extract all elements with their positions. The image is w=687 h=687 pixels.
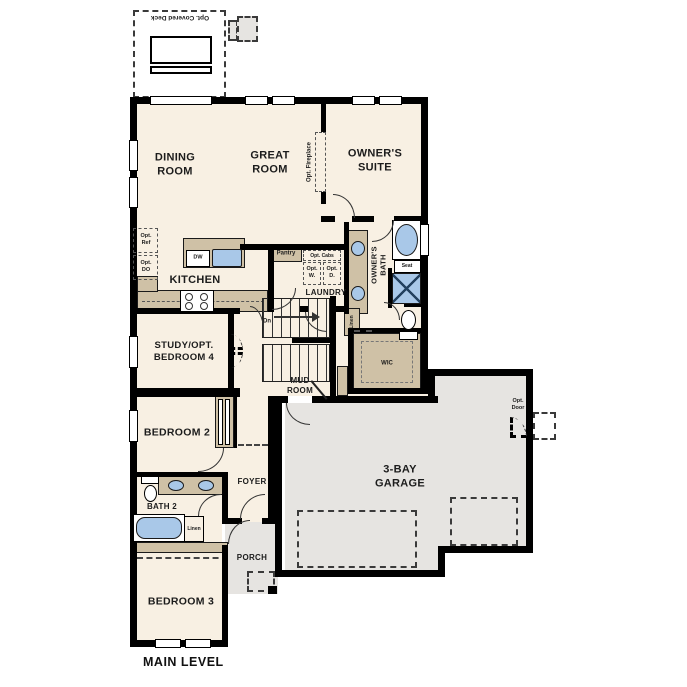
wall bbox=[222, 545, 228, 647]
closet-slider bbox=[225, 399, 230, 445]
opt-cabs-label: Opt. Cabs bbox=[310, 253, 334, 259]
wall bbox=[428, 369, 435, 403]
wall bbox=[421, 352, 428, 394]
stairs-dn-label: Dn bbox=[263, 318, 271, 326]
burner-icon bbox=[200, 293, 208, 301]
wall bbox=[275, 570, 445, 577]
window bbox=[129, 140, 138, 171]
opt-fireplace-box bbox=[315, 132, 326, 192]
bath2-sink bbox=[168, 480, 184, 491]
deck-stair-landing bbox=[150, 36, 212, 64]
mud-room-label: MUD ROOM bbox=[287, 376, 313, 396]
study-label: STUDY/OPT. BEDROOM 4 bbox=[154, 340, 214, 364]
wall bbox=[348, 388, 428, 394]
owners-suite-label: OWNER'S SUITE bbox=[348, 147, 402, 175]
toilet-tank bbox=[399, 331, 418, 340]
wall bbox=[352, 216, 374, 222]
owners-tub bbox=[395, 224, 418, 256]
porch-label: PORCH bbox=[237, 553, 267, 563]
opt-door-landing bbox=[533, 412, 556, 440]
wall bbox=[222, 472, 228, 522]
window bbox=[129, 410, 138, 442]
window bbox=[379, 96, 402, 105]
deck-label: Opt. Covered Deck bbox=[151, 13, 209, 21]
window bbox=[185, 639, 211, 648]
bedroom3-label: BEDROOM 3 bbox=[148, 595, 214, 608]
linen-bath2-label: Linen bbox=[187, 526, 200, 532]
burner-icon bbox=[185, 302, 193, 310]
window bbox=[352, 96, 375, 105]
garage-bay bbox=[450, 497, 518, 546]
wall bbox=[438, 546, 533, 553]
vanity-sink bbox=[351, 241, 365, 256]
garage-label: 3-BAY GARAGE bbox=[375, 463, 425, 491]
opt-ref-label: Opt. Ref bbox=[141, 233, 152, 247]
kitchen-sink bbox=[212, 249, 242, 267]
wall bbox=[344, 222, 349, 314]
porch-post bbox=[268, 586, 277, 594]
closet-rod bbox=[137, 557, 228, 559]
window bbox=[129, 177, 138, 208]
opt-do-label: Opt. DO bbox=[141, 260, 152, 274]
great-room-label: GREAT ROOM bbox=[250, 149, 289, 177]
pantry-label: Pantry bbox=[277, 250, 296, 258]
window bbox=[155, 639, 181, 648]
foyer-closet-shelf bbox=[238, 444, 268, 446]
bath2-sink bbox=[198, 480, 214, 491]
bath2-tub bbox=[136, 517, 182, 539]
opt-door-label: Opt. Door bbox=[512, 398, 525, 412]
linen-owners-label: Linen bbox=[349, 315, 355, 328]
closet-slider bbox=[218, 399, 223, 445]
kitchen-label: KITCHEN bbox=[170, 274, 221, 288]
deck-slider-door bbox=[150, 96, 212, 105]
window bbox=[420, 224, 429, 256]
toilet-tank bbox=[141, 476, 159, 484]
window bbox=[129, 336, 138, 368]
dining-room-label: DINING ROOM bbox=[155, 151, 195, 179]
wall bbox=[330, 296, 336, 396]
deck-stair-step bbox=[150, 66, 212, 74]
seat-label: Seat bbox=[402, 263, 413, 269]
wall bbox=[526, 369, 533, 553]
vanity-sink bbox=[351, 286, 365, 301]
toilet-bowl bbox=[144, 485, 157, 502]
opt-fireplace-label: Opt. Fireplace bbox=[306, 142, 314, 182]
plan-title: MAIN LEVEL bbox=[143, 655, 224, 669]
foyer-label: FOYER bbox=[237, 477, 266, 487]
owners-bath-label: OWNER'S BATH bbox=[370, 246, 389, 284]
stairs-landing-edge bbox=[292, 338, 330, 343]
dishwasher-label: DW bbox=[193, 255, 202, 262]
garage-bay bbox=[297, 510, 417, 568]
laundry-label: LAUNDRY bbox=[306, 288, 347, 298]
owners-shower bbox=[392, 273, 421, 304]
deck-steps bbox=[237, 16, 258, 42]
wall bbox=[312, 396, 438, 403]
wall bbox=[428, 369, 533, 376]
burner-icon bbox=[185, 293, 193, 301]
wic-opening bbox=[354, 330, 372, 332]
wall bbox=[234, 396, 237, 448]
bedroom3-closet-shelf bbox=[133, 542, 228, 553]
bath2-label: BATH 2 bbox=[147, 502, 177, 512]
burner-icon bbox=[200, 302, 208, 310]
wic-label: WIC bbox=[381, 360, 393, 368]
wall bbox=[275, 396, 282, 577]
toilet-bowl bbox=[401, 310, 416, 330]
window bbox=[272, 96, 295, 105]
wall bbox=[228, 308, 234, 394]
floor-plan: Opt. Covered Deck DINING ROOM GREAT ROOM… bbox=[0, 0, 687, 687]
wall bbox=[268, 396, 275, 522]
window bbox=[245, 96, 268, 105]
opt-washer-label: Opt. W. bbox=[307, 266, 318, 280]
bedroom2-label: BEDROOM 2 bbox=[144, 426, 210, 439]
mudroom-bench bbox=[337, 366, 348, 396]
opt-dryer-label: Opt. D. bbox=[327, 266, 338, 280]
wall bbox=[348, 328, 353, 392]
wall bbox=[130, 388, 240, 397]
